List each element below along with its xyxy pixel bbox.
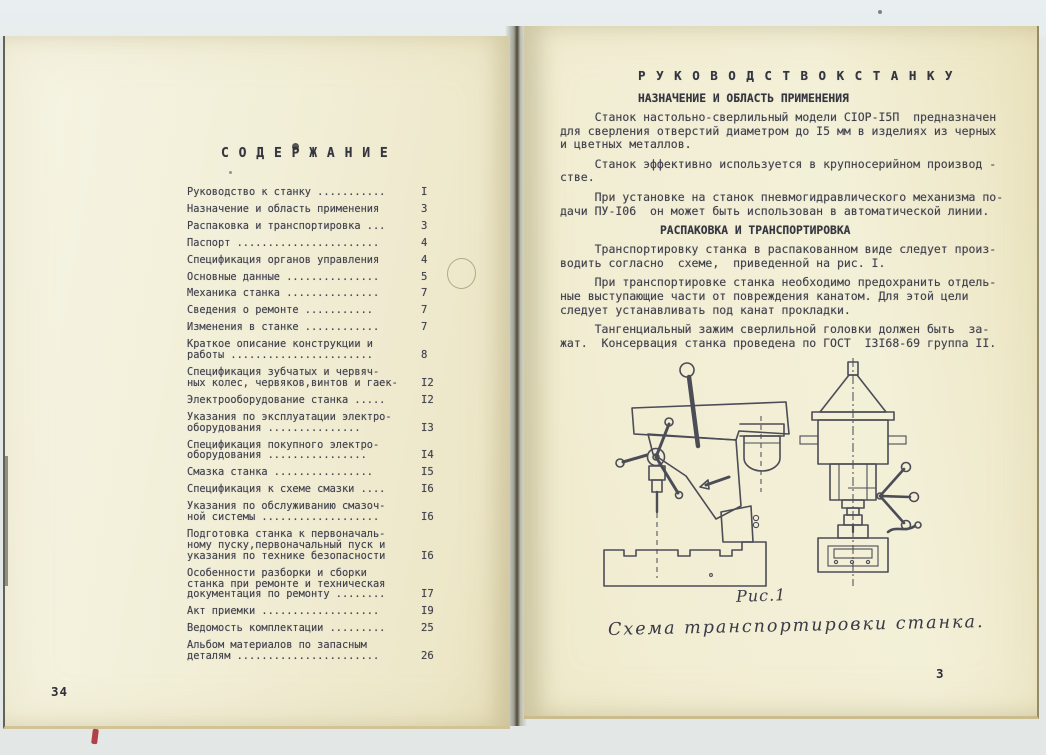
toc-entry-label: Спецификация покупного электро- оборудов… (187, 440, 421, 462)
toc-entry-label: Указания по обслуживанию смазоч- ной сис… (187, 501, 421, 523)
toc-entry: Назначение и область применения3 (187, 204, 477, 215)
right-page-number: 3 (936, 666, 945, 681)
left-page-number: 34 (51, 684, 68, 699)
ink-speck (229, 171, 232, 174)
toc-entry-label: Спецификация зубчатых и червяч- ных коле… (187, 367, 421, 389)
toc-entry-page: 8 (421, 350, 455, 361)
toc-entry: Ведомость комплектации .........25 (187, 623, 477, 634)
manual-text-block: Р У К О В О Д С Т В О К С Т А Н К У НАЗН… (560, 68, 1032, 356)
red-pen-mark (91, 729, 99, 745)
drill-press-front-view (800, 358, 921, 586)
drill-press-side-view (604, 363, 789, 586)
toc-title: С О Д Е Р Ж А Н И Е (221, 146, 477, 161)
toc-entry: Акт приемки ...................I9 (187, 606, 477, 617)
page-edge-blotch (5, 456, 8, 586)
toc-entry-page: 7 (421, 288, 455, 299)
toc-entry-page: 3 (421, 221, 455, 232)
ink-speck (292, 143, 299, 150)
toc-entry: Спецификация зубчатых и червяч- ных коле… (187, 367, 477, 389)
manual-title: Р У К О В О Д С Т В О К С Т А Н К У (560, 68, 1032, 83)
toc-entry-label: Распаковка и транспортировка ... (187, 221, 421, 232)
toc-entry-label: Краткое описание конструкции и работы ..… (187, 339, 421, 361)
toc-entry-label: Основные данные ............... (187, 272, 421, 283)
toc-entry-page: I9 (421, 606, 455, 617)
toc-entry-page: I5 (421, 467, 455, 478)
toc-entry-label: Паспорт ....................... (187, 238, 421, 249)
paragraph: Тангенциальный зажим сверлильной головки… (560, 323, 1032, 350)
toc-entry-label: Электрооборудование станка ..... (187, 395, 421, 406)
toc-entry-label: Указания по эксплуатации электро- оборуд… (187, 412, 421, 434)
paragraph: При установке на станок пневмогидравличе… (560, 191, 1032, 218)
toc-entry-page: I6 (421, 512, 455, 523)
toc-entry-label: Смазка станка ................ (187, 467, 421, 478)
toc-entry: Изменения в станке ............7 (187, 322, 477, 333)
figure-transport-scheme (590, 356, 978, 592)
section-heading-purpose: НАЗНАЧЕНИЕ И ОБЛАСТЬ ПРИМЕНЕНИЯ (638, 92, 1032, 105)
paragraph: При транспортировке станка необходимо пр… (560, 276, 1032, 317)
toc-entry-label: Спецификация органов управления (187, 255, 421, 266)
toc-entry: Указания по эксплуатации электро- оборуд… (187, 412, 477, 434)
scanned-manual-spread: { "left_page": { "page_number": "34", "t… (0, 0, 1046, 755)
toc-entry-page: I6 (421, 551, 455, 562)
toc-entry-label: Спецификация к схеме смазки .... (187, 484, 421, 495)
toc-entry-page: 7 (421, 305, 455, 316)
toc-entry-page: I2 (421, 395, 455, 406)
toc-entry-label: Особенности разборки и сборки станка при… (187, 568, 421, 601)
toc-entry: Особенности разборки и сборки станка при… (187, 568, 477, 601)
toc-entry-label: Акт приемки ................... (187, 606, 421, 617)
toc-entry: Краткое описание конструкции и работы ..… (187, 339, 477, 361)
toc-entry: Руководство к станку ...........I (187, 187, 477, 198)
toc-entry-label: Изменения в станке ............ (187, 322, 421, 333)
toc-entry: Электрооборудование станка .....I2 (187, 395, 477, 406)
toc-entry-page: I6 (421, 484, 455, 495)
toc-entry-page: I7 (421, 589, 455, 600)
toc-entry-page: 3 (421, 204, 455, 215)
toc-entry-label: Подготовка станка к первоначаль- ному пу… (187, 529, 421, 562)
table-of-contents: С О Д Е Р Ж А Н И Е Руководство к станку… (187, 146, 477, 668)
toc-entry: Распаковка и транспортировка ...3 (187, 221, 477, 232)
toc-entry-page: 25 (421, 623, 455, 634)
toc-entry-page: I (421, 187, 455, 198)
section-heading-unpacking: РАСПАКОВКА И ТРАНСПОРТИРОВКА (660, 224, 1032, 237)
toc-entry-label: Назначение и область применения (187, 204, 421, 215)
toc-entry-page: 7 (421, 322, 455, 333)
toc-entry: Механика станка ...............7 (187, 288, 477, 299)
toc-page: С О Д Е Р Ж А Н И Е Руководство к станку… (3, 36, 510, 729)
figure-subcaption: Схема транспортировки станка. (608, 612, 985, 640)
toc-entry-label: Альбом материалов по запасным деталям ..… (187, 640, 421, 662)
toc-entry-label: Ведомость комплектации ......... (187, 623, 421, 634)
toc-entry-label: Сведения о ремонте ........... (187, 305, 421, 316)
paragraph: Станок эффективно используется в крупнос… (560, 158, 1032, 185)
toc-entry: Смазка станка ................I5 (187, 467, 477, 478)
ink-speck (878, 10, 882, 14)
toc-entry: Спецификация к схеме смазки ....I6 (187, 484, 477, 495)
toc-entry-page: 4 (421, 238, 455, 249)
figure-caption: Рис.1 (736, 585, 787, 606)
paragraph: Транспортировку станка в распакованном в… (560, 243, 1032, 270)
toc-entry: Подготовка станка к первоначаль- ному пу… (187, 529, 477, 562)
toc-entry: Паспорт .......................4 (187, 238, 477, 249)
toc-entry-page: I4 (421, 450, 455, 461)
toc-entry: Альбом материалов по запасным деталям ..… (187, 640, 477, 662)
toc-entry-label: Руководство к станку ........... (187, 187, 421, 198)
toc-entry-page: I2 (421, 378, 455, 389)
toc-entry: Спецификация покупного электро- оборудов… (187, 440, 477, 462)
paragraph: Станок настольно-сверлильный модели СIOР… (560, 111, 1032, 152)
manual-page: Р У К О В О Д С Т В О К С Т А Н К У НАЗН… (524, 26, 1039, 719)
toc-entry-label: Механика станка ............... (187, 288, 421, 299)
toc-entry: Сведения о ремонте ...........7 (187, 305, 477, 316)
toc-entry-page: I3 (421, 423, 455, 434)
drill-press-drawings (590, 356, 978, 592)
toc-entry: Основные данные ...............5 (187, 272, 477, 283)
toc-entry: Указания по обслуживанию смазоч- ной сис… (187, 501, 477, 523)
toc-entry: Спецификация органов управления4 (187, 255, 477, 266)
toc-entry-page: 26 (421, 651, 455, 662)
